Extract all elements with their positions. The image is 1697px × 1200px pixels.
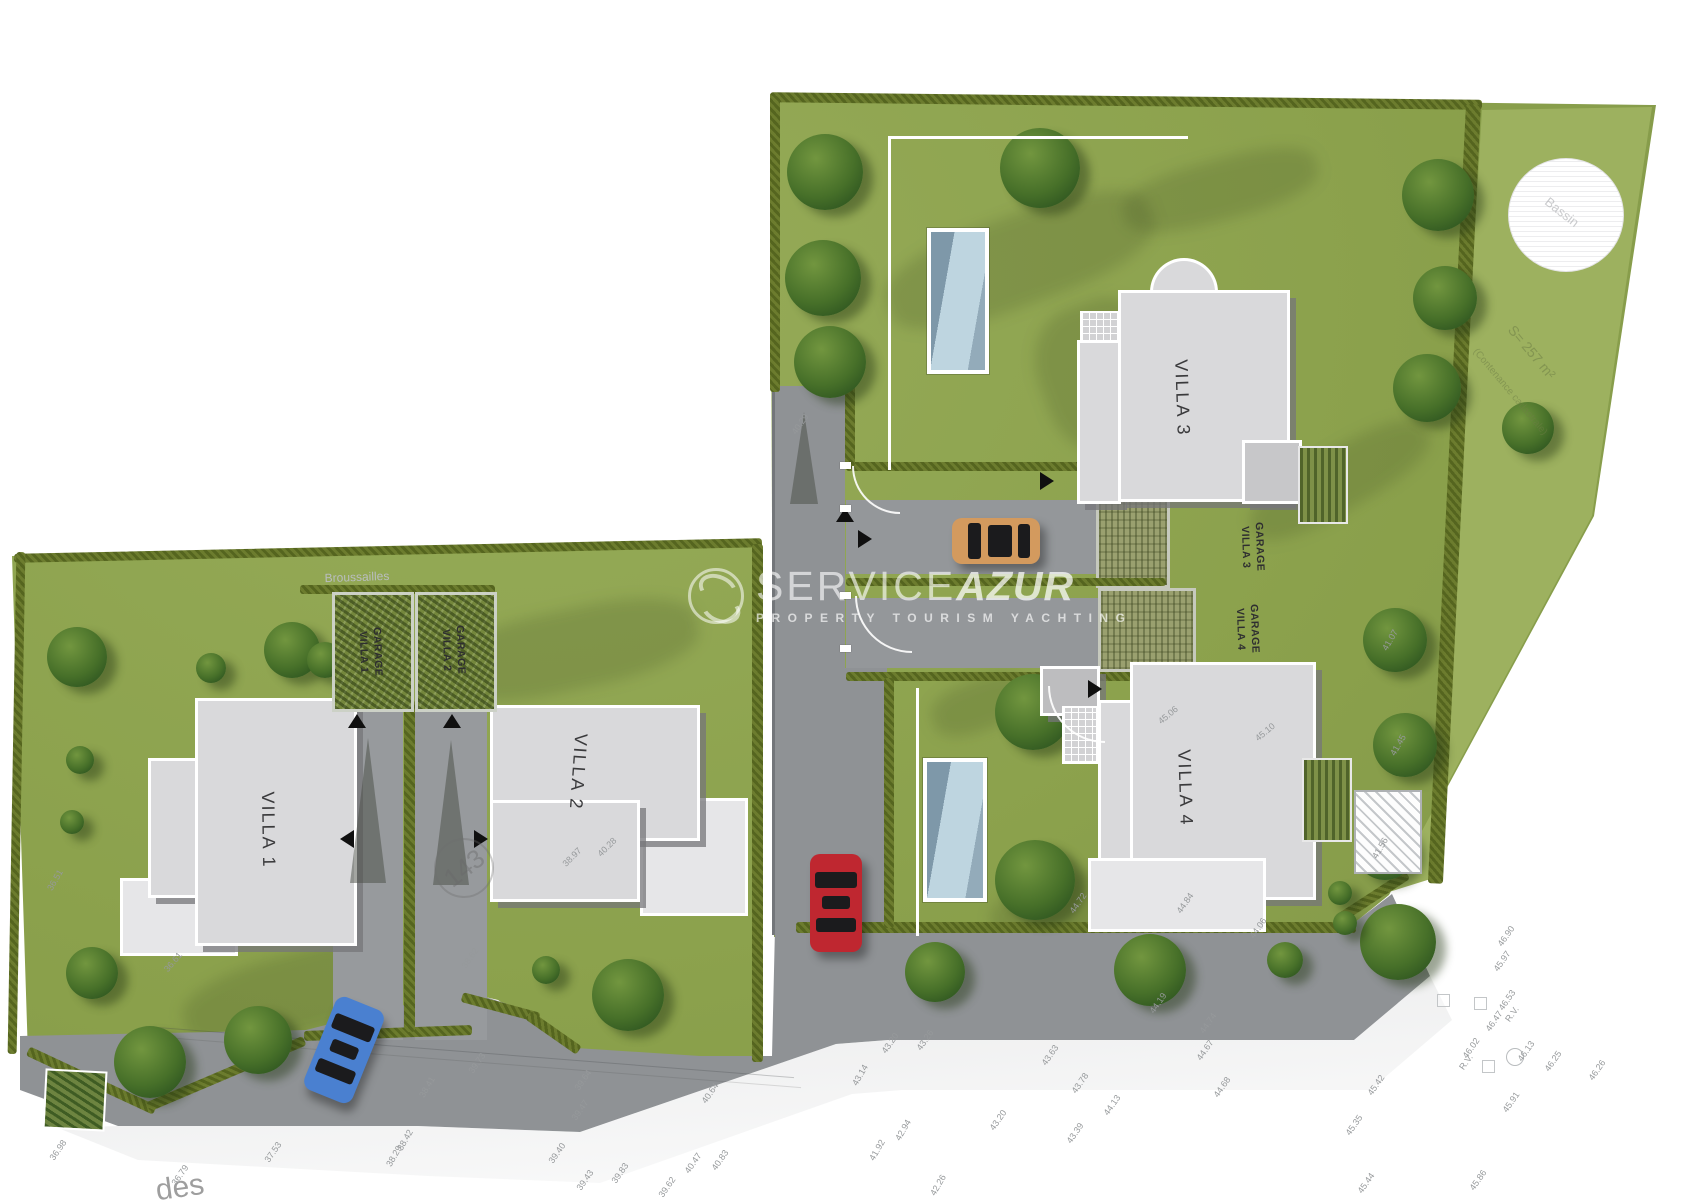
car-rear-window	[1018, 524, 1030, 558]
hedge	[796, 922, 1356, 933]
gate-post	[840, 505, 851, 512]
survey-point: 45.91	[1500, 1090, 1521, 1114]
garden-fence-line	[888, 136, 891, 470]
parcel-number: 143	[437, 842, 490, 893]
villa-4-terrace	[1088, 858, 1266, 932]
hedge	[770, 96, 780, 392]
survey-point: 36.98	[47, 1138, 68, 1162]
tree	[47, 627, 107, 687]
survey-point: 43.39	[1064, 1121, 1085, 1145]
survey-point: 40.83	[709, 1148, 730, 1172]
hedge	[752, 544, 763, 1062]
garage-villa-2-label: GARAGE VILLA 2	[439, 625, 468, 675]
survey-point: 45.35	[1343, 1113, 1364, 1137]
tree	[60, 810, 84, 834]
survey-point: 42.94	[893, 1118, 913, 1143]
tree	[1267, 942, 1303, 978]
survey-point: 46.53	[1496, 988, 1517, 1012]
car-rear-window	[816, 918, 856, 932]
survey-point: 42.26	[928, 1173, 948, 1198]
garage-label-line: VILLA 4	[1234, 608, 1247, 651]
garage-villa-4-label: GARAGE VILLA 4	[1233, 604, 1262, 654]
survey-point: 46.25	[1542, 1049, 1563, 1073]
garage-label-line: GARAGE	[371, 627, 385, 676]
tree	[1373, 713, 1437, 777]
vegetation-plot	[42, 1068, 107, 1131]
garden-fence-line	[916, 688, 919, 936]
garage-label-line: GARAGE	[1248, 604, 1262, 653]
garage-label-line: VILLA 1	[357, 631, 370, 674]
survey-marker	[1474, 997, 1487, 1010]
car-red	[810, 854, 862, 952]
pool-villa-3	[927, 228, 989, 374]
street-name-fragment: des	[154, 1168, 207, 1200]
tree	[66, 746, 94, 774]
survey-point: 41.92	[867, 1138, 887, 1163]
tree	[114, 1026, 186, 1098]
car-tan	[952, 518, 1040, 564]
garage-villa-1-label: GARAGE VILLA 1	[356, 627, 385, 677]
tree	[995, 840, 1075, 920]
tree	[196, 653, 226, 683]
car-roof-window	[329, 1038, 360, 1061]
survey-point: 46.02	[1460, 1036, 1481, 1060]
gate-arrow-icon	[348, 714, 366, 728]
survey-marker	[1482, 1060, 1495, 1073]
gate-arrow-icon	[858, 530, 872, 548]
car-roof-window	[822, 896, 850, 909]
tree	[785, 240, 861, 316]
tree	[592, 959, 664, 1031]
tree	[1360, 904, 1436, 980]
tree	[1393, 354, 1461, 422]
villa-2-building	[490, 800, 640, 902]
garage-label-line: VILLA 2	[440, 629, 453, 672]
survey-point: 46.90	[1495, 924, 1516, 948]
survey-point: 45.97	[1491, 949, 1512, 973]
survey-point: R.V.	[1457, 1052, 1475, 1071]
survey-point: 45.44	[1355, 1171, 1376, 1195]
survey-point: 43.20	[987, 1108, 1008, 1132]
villa-3-wing	[1077, 340, 1121, 504]
tree	[1402, 159, 1474, 231]
garage-label-line: GARAGE	[454, 625, 468, 674]
survey-point: 40.47	[682, 1151, 703, 1175]
driveway-arrow-shadow	[350, 738, 386, 883]
survey-marker	[1437, 994, 1450, 1007]
tree	[1000, 128, 1080, 208]
tree	[1333, 911, 1357, 935]
tree	[905, 942, 965, 1002]
car-windshield	[331, 1012, 376, 1043]
tree	[532, 956, 560, 984]
tree	[787, 134, 863, 210]
road-edge-line	[772, 388, 775, 935]
site-plan: VILLA 1 VILLA 2 VILLA 3 VILLA 4 GARAGE V…	[0, 0, 1697, 1200]
gate-arrow-icon	[340, 830, 354, 848]
gate-arrow-icon	[1040, 472, 1054, 490]
villa-1-label: VILLA 1	[257, 791, 279, 868]
gate-post	[840, 462, 851, 469]
hedge	[845, 386, 855, 466]
garage-plot-villa-3	[1096, 498, 1170, 588]
tree	[1328, 881, 1352, 905]
survey-point: 46.26	[1586, 1058, 1607, 1082]
driveway-arrow-shadow	[790, 412, 818, 504]
car-windshield	[815, 872, 857, 888]
survey-point: R.V.	[1503, 1004, 1521, 1023]
gate-post	[840, 592, 851, 599]
villa-4-pergola	[1302, 758, 1352, 842]
hedge	[884, 678, 894, 928]
garage-villa-3-label: GARAGE VILLA 3	[1238, 522, 1267, 572]
car-rear-window	[314, 1057, 356, 1085]
villa-3-pergola	[1298, 446, 1348, 524]
hedge-driveway-divider	[404, 700, 415, 1032]
tree	[1363, 608, 1427, 672]
garden-fence-line	[888, 136, 1188, 139]
villa-3-label: VILLA 3	[1170, 359, 1194, 437]
survey-point: 46.47	[1483, 1009, 1504, 1033]
villa-3-garage-annex	[1242, 440, 1302, 504]
garage-plot-villa-4	[1098, 588, 1196, 672]
tree	[1413, 266, 1477, 330]
villa-4-label: VILLA 4	[1173, 749, 1197, 827]
survey-point: 44.13	[1101, 1093, 1122, 1117]
gate-post	[840, 645, 851, 652]
villa-3-porch	[1080, 311, 1120, 343]
survey-point: 39.62	[656, 1175, 677, 1199]
tree	[1114, 934, 1186, 1006]
garage-label-line: GARAGE	[1253, 522, 1267, 571]
broussailles-note: Broussailles	[324, 569, 389, 585]
tree	[794, 326, 866, 398]
car-windshield	[968, 523, 981, 559]
pool-villa-4	[923, 758, 987, 902]
hatched-area	[1354, 790, 1422, 874]
survey-point: 45.86	[1467, 1168, 1488, 1192]
survey-marker	[1506, 1048, 1524, 1066]
tree	[66, 947, 118, 999]
car-roof-window	[988, 525, 1012, 557]
gate-arrow-icon	[443, 714, 461, 728]
tree	[224, 1006, 292, 1074]
garage-label-line: VILLA 3	[1239, 526, 1252, 569]
hedge	[846, 578, 1166, 586]
